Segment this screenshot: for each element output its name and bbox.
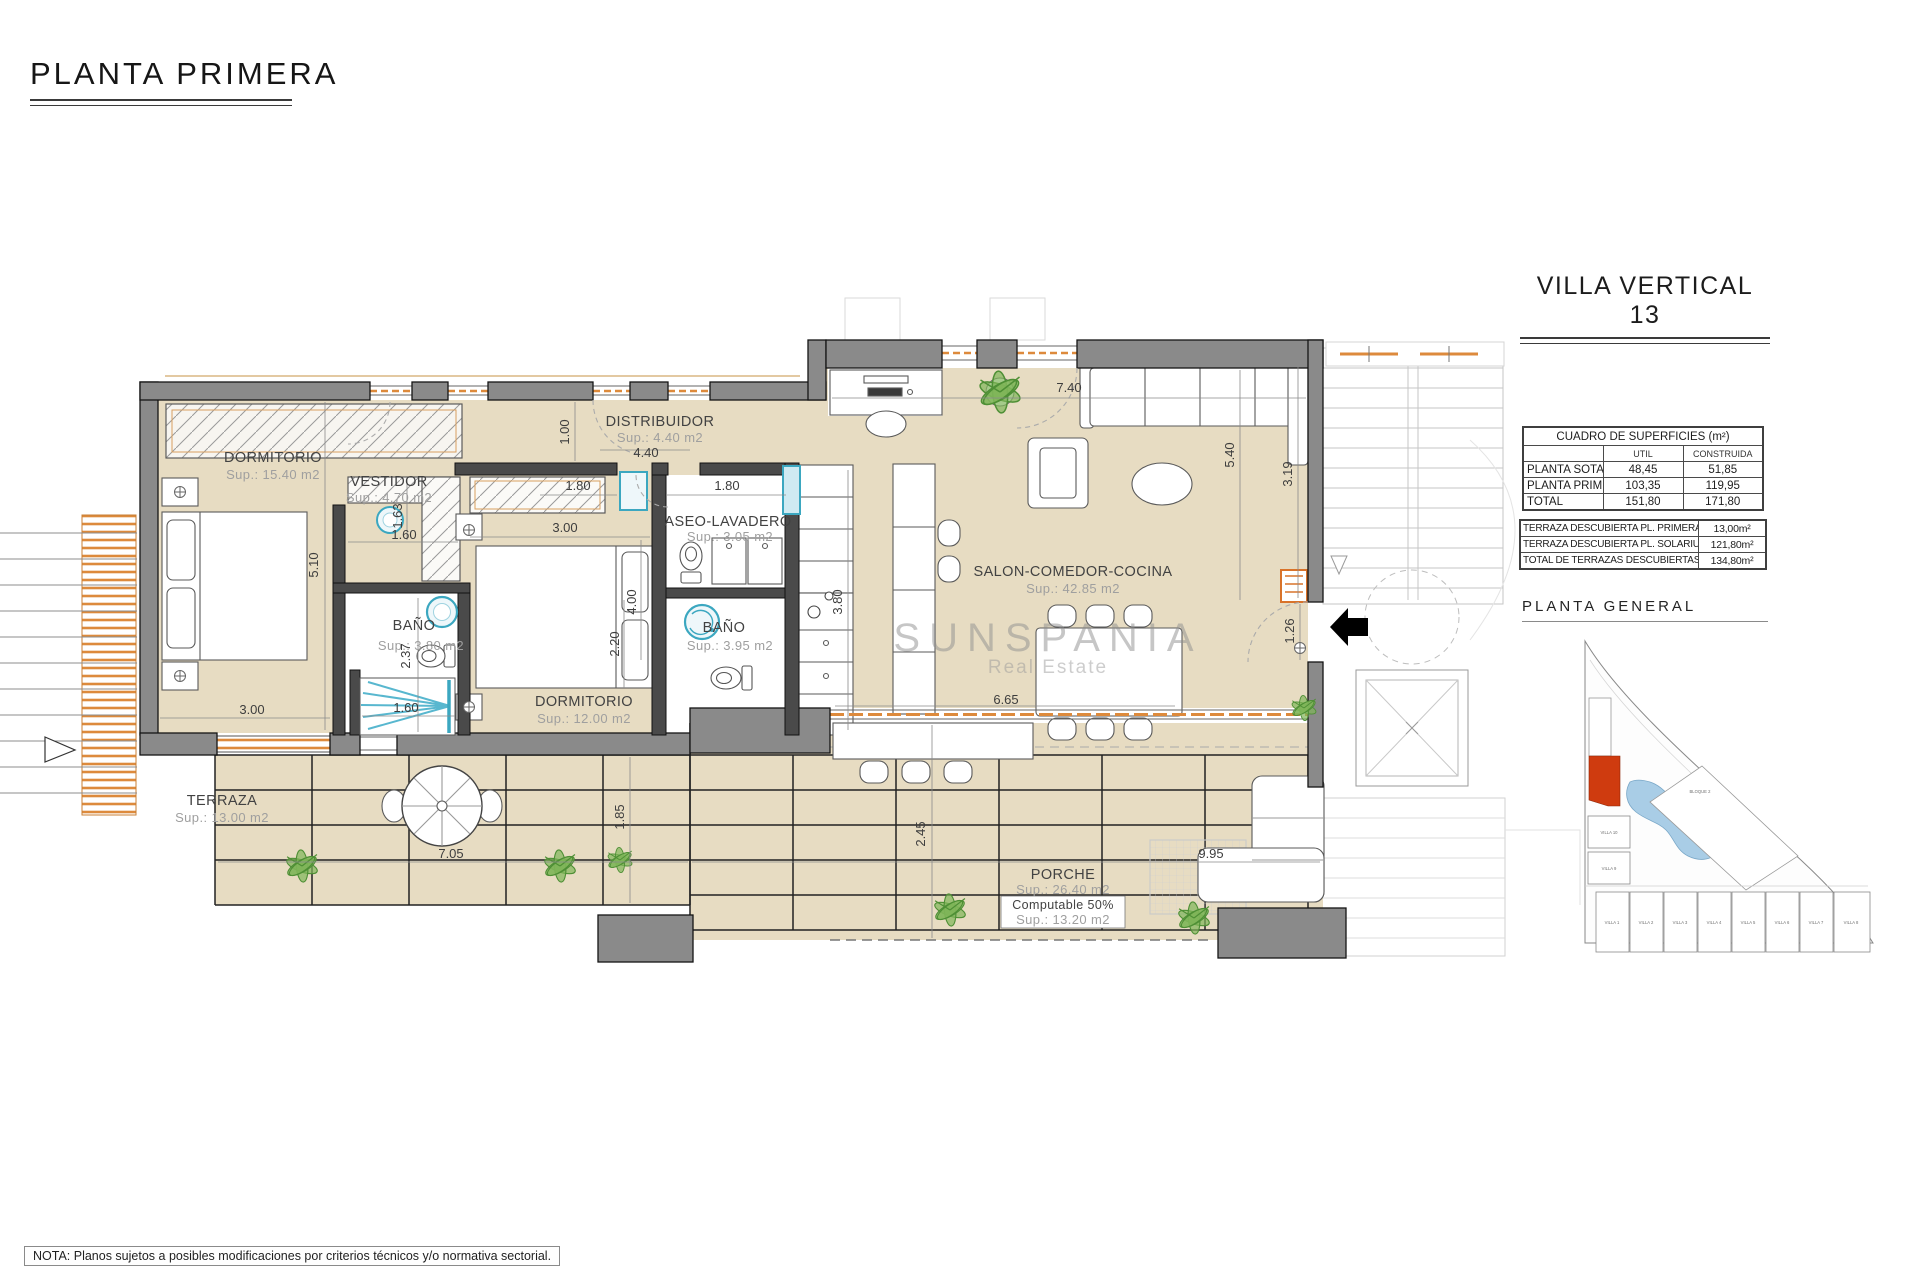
site-label-villa7: VILLA 7 <box>1809 920 1824 925</box>
site-label-villa2: VILLA 2 <box>1639 920 1654 925</box>
dim: 1.60 <box>391 527 416 542</box>
dim: 7.40 <box>1056 380 1081 395</box>
room-label-dorm2: DORMITORIO <box>535 694 633 710</box>
room-area-bano2: Sup.: 3.95 m2 <box>687 638 773 653</box>
dim: 1.85 <box>612 804 627 829</box>
dim: 2.20 <box>607 631 622 656</box>
row-value: 134,80m² <box>1699 553 1767 570</box>
table-row: TERRAZA DESCUBIERTA PL. SOLARIUM 121,80m… <box>1520 537 1766 553</box>
table-row: TOTAL DE TERRAZAS DESCUBIERTAS 134,80m² <box>1520 553 1766 570</box>
site-plan-title: PLANTA GENERAL <box>1522 598 1768 622</box>
bed-master <box>162 512 307 660</box>
room-area-porche: Sup.: 26.40 m2 <box>1016 882 1110 897</box>
dim: 1.00 <box>557 419 572 444</box>
surface-table: CUADRO DE SUPERFICIES (m²) UTIL CONSTRUI… <box>1522 426 1764 511</box>
row-util: 103,35 <box>1603 478 1683 494</box>
floorplan-page: PLANTA PRIMERA <box>0 0 1920 1280</box>
site-label-bloque2: BLOQUE 2 <box>1690 789 1712 794</box>
dim: 5.40 <box>1222 442 1237 467</box>
window-sill <box>217 736 330 752</box>
row-value: 121,80m² <box>1699 537 1767 553</box>
dim: 1.80 <box>565 478 590 493</box>
room-area-bano1: Sup.: 3.80 m2 <box>378 638 464 653</box>
site-label-villa9: VILLA 9 <box>1602 866 1617 871</box>
dim: 6.65 <box>993 692 1018 707</box>
dim: 2.45 <box>913 821 928 846</box>
row-construida: 51,85 <box>1683 462 1763 478</box>
dim: 3.00 <box>239 702 264 717</box>
porche-computable: Computable 50% <box>1012 898 1114 912</box>
row-label: TERRAZA DESCUBIERTA PL. SOLARIUM <box>1520 537 1699 553</box>
row-label: TERRAZA DESCUBIERTA PL. PRIMERA <box>1520 520 1699 537</box>
table-row: PLANTA PRIMERA 103,35 119,95 <box>1523 478 1763 494</box>
site-label-villa3: VILLA 3 <box>1673 920 1688 925</box>
room-label-bano1: BAÑO <box>393 617 436 634</box>
villa-title-underline <box>1520 337 1770 344</box>
room-label-bano2: BAÑO <box>703 619 746 636</box>
room-area-dorm1: Sup.: 15.40 m2 <box>226 467 320 482</box>
dim: 2.37 <box>398 643 413 668</box>
room-area-vestidor: Sup.: 4.70 m2 <box>346 490 432 505</box>
floorplan-drawing: DORMITORIO Sup.: 15.40 m2 VESTIDOR Sup.:… <box>0 0 1920 1280</box>
room-label-distribuidor: DISTRIBUIDOR <box>606 414 715 430</box>
dim: 7.05 <box>438 846 463 861</box>
dim: 1.26 <box>1282 618 1297 643</box>
porche-computable-area: Sup.: 13.20 m2 <box>1016 912 1110 927</box>
terrace-table: TERRAZA DESCUBIERTA PL. PRIMERA 13,00m² … <box>1519 519 1767 570</box>
sideboard <box>1281 570 1307 602</box>
site-plan: BLOQUE 2 VILLA 10 VILLA 9 VILLA 1 VILLA … <box>1585 641 1873 952</box>
room-area-salon: Sup.: 42.85 m2 <box>1026 581 1120 596</box>
entrance-arrow-icon <box>1330 608 1368 646</box>
room-label-dorm1: DORMITORIO <box>224 450 322 466</box>
desk-chair <box>866 411 906 437</box>
toilet-bano2 <box>711 666 752 690</box>
table-row: TOTAL 151,80 171,80 <box>1523 494 1763 511</box>
row-label: PLANTA PRIMERA <box>1523 478 1603 494</box>
room-label-salon: SALON-COMEDOR-COCINA <box>974 564 1173 580</box>
row-construida: 119,95 <box>1683 478 1763 494</box>
row-label: TOTAL <box>1523 494 1603 511</box>
table-row: PLANTA SOTANO 48,45 51,85 <box>1523 462 1763 478</box>
dim: 1.80 <box>714 478 739 493</box>
room-area-terraza: Sup.: 13.00 m2 <box>175 810 269 825</box>
dim: 4.40 <box>633 445 658 460</box>
coffee-table <box>1132 463 1192 505</box>
villa-title-text: VILLA VERTICAL 13 <box>1537 272 1753 329</box>
dim: 5.10 <box>306 552 321 577</box>
surface-col-construida: CONSTRUIDA <box>1683 446 1763 462</box>
room-label-aseo: ASEO-LAVADERO <box>664 514 791 530</box>
dim: 1.60 <box>393 700 418 715</box>
dim: 3.00 <box>552 520 577 535</box>
villa-title: VILLA VERTICAL 13 <box>1520 272 1770 344</box>
table-row: TERRAZA DESCUBIERTA PL. PRIMERA 13,00m² <box>1520 520 1766 537</box>
surface-col-util: UTIL <box>1603 446 1683 462</box>
row-value: 13,00m² <box>1699 520 1767 537</box>
room-label-vestidor: VESTIDOR <box>350 474 427 490</box>
armchair-cushion <box>1040 448 1076 498</box>
site-label-villa4: VILLA 4 <box>1707 920 1722 925</box>
dim: 4.00 <box>624 589 639 614</box>
site-label-villa5: VILLA 5 <box>1741 920 1756 925</box>
site-label-villa8: VILLA 8 <box>1844 920 1859 925</box>
toilet-aseo <box>680 542 702 583</box>
bar-stool <box>938 520 960 546</box>
footer-note: NOTA: Planos sujetos a posibles modifica… <box>24 1246 560 1266</box>
dim: 3.19 <box>1280 461 1295 486</box>
room-area-dorm2: Sup.: 12.00 m2 <box>537 711 631 726</box>
row-util: 151,80 <box>1603 494 1683 511</box>
dim: 1.63 <box>390 503 405 528</box>
room-label-terraza: TERRAZA <box>187 793 257 809</box>
row-construida: 171,80 <box>1683 494 1763 511</box>
dim: 3.80 <box>830 589 845 614</box>
surface-col-blank <box>1523 446 1603 462</box>
surface-table-title: CUADRO DE SUPERFICIES (m²) <box>1523 427 1763 446</box>
room-area-aseo: Sup.: 3.05 m2 <box>687 529 773 544</box>
row-label: PLANTA SOTANO <box>1523 462 1603 478</box>
site-label-villa1: VILLA 1 <box>1605 920 1620 925</box>
site-label-villa6: VILLA 6 <box>1775 920 1790 925</box>
bar-stool <box>938 556 960 582</box>
left-exterior-steps <box>0 515 137 815</box>
site-label-villa10: VILLA 10 <box>1601 830 1619 835</box>
room-area-distribuidor: Sup.: 4.40 m2 <box>617 430 703 445</box>
door-leaf-cyan <box>620 472 647 510</box>
site-highlight-villa-vertical-13 <box>1589 756 1620 806</box>
window-aseo <box>783 466 800 514</box>
row-label: TOTAL DE TERRAZAS DESCUBIERTAS <box>1520 553 1699 570</box>
bed-dorm2 <box>476 546 654 688</box>
room-label-porche: PORCHE <box>1031 867 1095 883</box>
row-util: 48,45 <box>1603 462 1683 478</box>
dim: 9.95 <box>1198 846 1223 861</box>
